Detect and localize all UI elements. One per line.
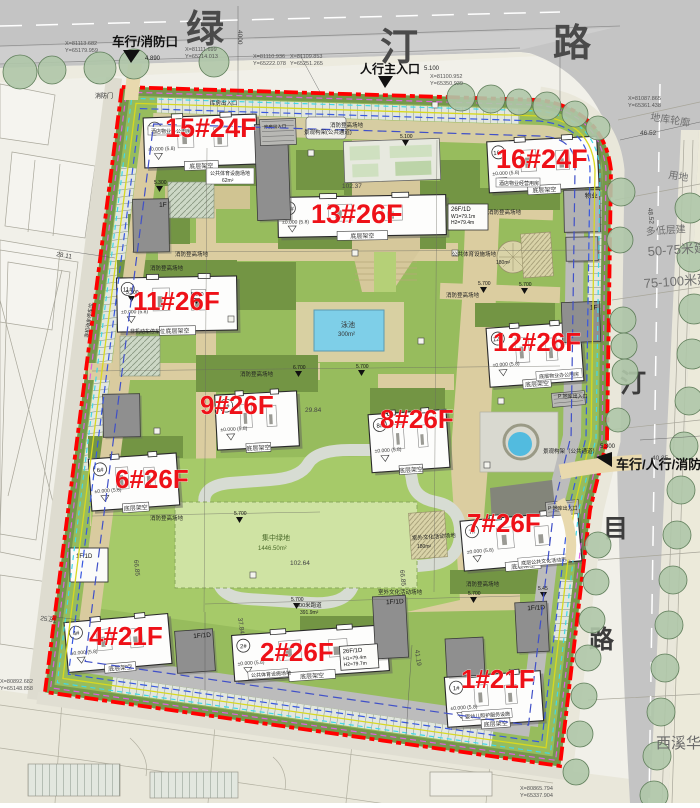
svg-text:X=81110.936: X=81110.936 bbox=[253, 54, 285, 60]
svg-text:1#: 1# bbox=[453, 686, 461, 692]
svg-text:人行主入口: 人行主入口 bbox=[360, 61, 420, 76]
svg-text:Y=65337.904: Y=65337.904 bbox=[520, 793, 553, 799]
svg-text:泳池: 泳池 bbox=[341, 320, 355, 329]
svg-text:消防登高场地: 消防登高场地 bbox=[150, 514, 184, 522]
svg-text:P 地库出入口: P 地库出入口 bbox=[548, 505, 578, 512]
svg-text:X=81113.682: X=81113.682 bbox=[65, 41, 97, 47]
svg-text:X=81111.699: X=81111.699 bbox=[185, 47, 217, 53]
svg-text:物业: 物业 bbox=[585, 191, 599, 200]
svg-text:26F/1D: 26F/1D bbox=[451, 207, 471, 213]
svg-text:景观构架（公共通道）: 景观构架（公共通道） bbox=[543, 447, 598, 455]
svg-text:消防登高场地: 消防登高场地 bbox=[150, 264, 184, 272]
svg-text:1F/1D: 1F/1D bbox=[193, 632, 211, 640]
svg-text:H2=79.4m: H2=79.4m bbox=[451, 220, 474, 226]
svg-text:Y=65148.858: Y=65148.858 bbox=[0, 686, 33, 692]
svg-text:X=81087.865: X=81087.865 bbox=[628, 96, 661, 102]
svg-text:公共体育设施场地: 公共体育设施场地 bbox=[210, 170, 250, 177]
svg-text:1#21F: 1#21F bbox=[461, 664, 535, 694]
svg-text:P 地库出入口: P 地库出入口 bbox=[558, 393, 588, 400]
svg-text:消防登高场地: 消防登高场地 bbox=[488, 208, 522, 216]
svg-text:180m²: 180m² bbox=[417, 544, 432, 550]
svg-text:Y=65179.959: Y=65179.959 bbox=[65, 48, 98, 54]
svg-text:库房出入口: 库房出入口 bbox=[210, 99, 238, 107]
svg-text:集中绿地: 集中绿地 bbox=[262, 533, 290, 542]
svg-text:300米跑道: 300米跑道 bbox=[296, 601, 322, 609]
svg-text:X=80865.794: X=80865.794 bbox=[520, 786, 553, 792]
svg-text:11#26F: 11#26F bbox=[133, 286, 220, 316]
svg-text:消防登高场地: 消防登高场地 bbox=[330, 121, 364, 129]
svg-text:非机动车停车位: 非机动车停车位 bbox=[130, 328, 165, 335]
svg-text:室外文化活动场地: 室外文化活动场地 bbox=[378, 588, 423, 596]
svg-text:酒店物业经营用房: 酒店物业经营用房 bbox=[499, 180, 539, 187]
svg-text:绿: 绿 bbox=[186, 9, 225, 51]
svg-text:6#: 6# bbox=[97, 468, 105, 474]
svg-text:2#26F: 2#26F bbox=[260, 637, 334, 667]
svg-text:Y=65251.265: Y=65251.265 bbox=[290, 61, 323, 67]
svg-text:102.64: 102.64 bbox=[290, 560, 310, 567]
svg-text:5.300: 5.300 bbox=[600, 444, 616, 450]
svg-text:5.100: 5.100 bbox=[400, 134, 413, 140]
svg-text:6#26F: 6#26F bbox=[115, 464, 189, 494]
svg-text:X=81100.952: X=81100.952 bbox=[430, 74, 462, 80]
svg-text:消防登高场地: 消防登高场地 bbox=[240, 370, 274, 378]
svg-text:4.890: 4.890 bbox=[145, 56, 161, 62]
svg-text:7#26F: 7#26F bbox=[467, 508, 541, 538]
svg-text:4000: 4000 bbox=[236, 30, 243, 45]
svg-text:6.700: 6.700 bbox=[293, 365, 306, 371]
svg-text:5.300: 5.300 bbox=[154, 180, 167, 186]
svg-text:12#26F: 12#26F bbox=[493, 327, 581, 357]
svg-text:5.100: 5.100 bbox=[424, 66, 440, 72]
svg-text:景观构架(公共通道): 景观构架(公共通道) bbox=[304, 128, 352, 136]
svg-text:车行/消防口: 车行/消防口 bbox=[112, 34, 178, 49]
svg-text:13#26F: 13#26F bbox=[311, 199, 403, 229]
svg-text:消防登高场地: 消防登高场地 bbox=[175, 250, 209, 258]
svg-text:16#24F: 16#24F bbox=[496, 144, 588, 174]
svg-text:X=80892.682: X=80892.682 bbox=[0, 679, 33, 685]
svg-text:5.700: 5.700 bbox=[468, 591, 481, 597]
svg-text:X=81109.853: X=81109.853 bbox=[290, 54, 322, 60]
svg-text:5.700: 5.700 bbox=[519, 282, 532, 288]
svg-text:Y=65214.013: Y=65214.013 bbox=[185, 54, 218, 60]
svg-text:±0.000 (5.8): ±0.000 (5.8) bbox=[148, 146, 175, 153]
svg-text:5.700: 5.700 bbox=[356, 364, 369, 370]
svg-text:2#: 2# bbox=[240, 644, 248, 650]
svg-text:消防登高场地: 消防登高场地 bbox=[466, 580, 500, 588]
svg-text:391.9m²: 391.9m² bbox=[300, 610, 319, 616]
svg-text:300m²: 300m² bbox=[338, 332, 355, 338]
svg-text:9#26F: 9#26F bbox=[200, 390, 274, 420]
svg-text:Y=65361.438: Y=65361.438 bbox=[628, 103, 661, 109]
svg-text:消防门: 消防门 bbox=[95, 92, 113, 100]
svg-text:5.700: 5.700 bbox=[234, 511, 247, 517]
svg-text:1F: 1F bbox=[159, 202, 167, 209]
svg-text:8#26F: 8#26F bbox=[380, 404, 454, 434]
svg-text:4#21F: 4#21F bbox=[89, 621, 163, 651]
svg-text:180m²: 180m² bbox=[496, 260, 511, 266]
svg-text:102.37: 102.37 bbox=[342, 183, 362, 190]
svg-text:1F: 1F bbox=[590, 304, 598, 311]
svg-text:Y=65350.939: Y=65350.939 bbox=[430, 81, 463, 87]
svg-text:5.45: 5.45 bbox=[538, 586, 548, 592]
svg-text:62m²: 62m² bbox=[222, 178, 234, 184]
svg-text:Y=65222.078: Y=65222.078 bbox=[253, 61, 286, 67]
svg-text:消防登高场地: 消防登高场地 bbox=[446, 291, 480, 299]
svg-text:40.35: 40.35 bbox=[652, 455, 669, 462]
svg-text:路: 路 bbox=[553, 23, 592, 65]
svg-text:15#24F: 15#24F bbox=[165, 113, 257, 143]
svg-text:29.84: 29.84 bbox=[305, 407, 322, 414]
svg-text:1446.50m²: 1446.50m² bbox=[258, 546, 287, 552]
svg-text:西溪华街: 西溪华街 bbox=[656, 735, 700, 752]
svg-text:5.700: 5.700 bbox=[478, 281, 491, 287]
svg-text:公共体育设施场地: 公共体育设施场地 bbox=[452, 250, 497, 258]
